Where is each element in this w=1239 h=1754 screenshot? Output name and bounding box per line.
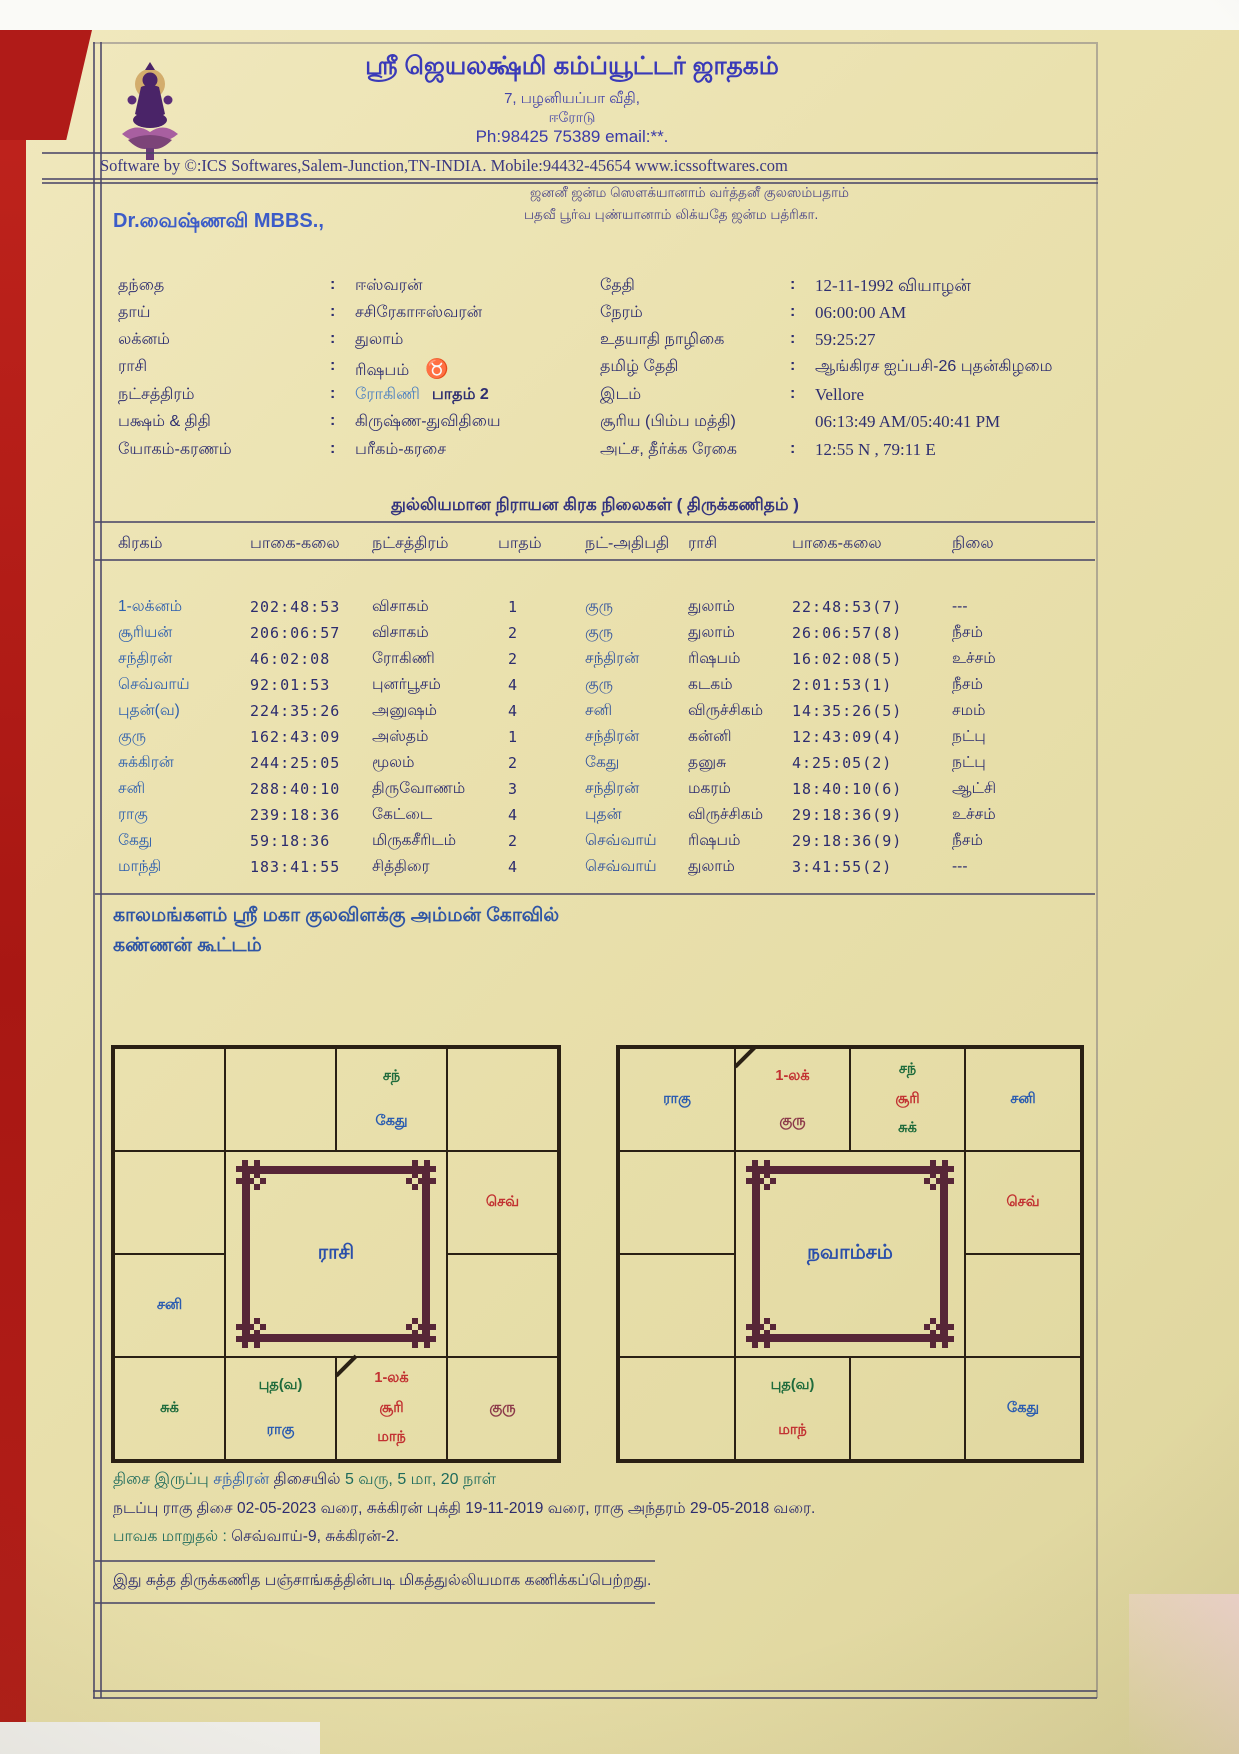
current-dasa-line: நடப்பு ராகு திசை 02-05-2023 வரை, சுக்கிர… xyxy=(113,1500,815,1519)
navamsa-cell-r4c4: கேது xyxy=(965,1357,1081,1460)
planet-saturn: சனி xyxy=(1010,1092,1035,1108)
detail-value: ஆங்கிரச ஐப்பசி-26 புதன்கிழமை xyxy=(815,357,1053,377)
col-padam: 4 xyxy=(508,858,518,876)
colon: : xyxy=(790,276,795,294)
col-padam: 1 xyxy=(508,728,518,746)
detail-value: பரீகம்-கரசை xyxy=(355,440,446,460)
planet-mars: செவ் xyxy=(1006,1195,1039,1211)
col-lord: புதன் xyxy=(585,806,622,825)
col-header-graham: கிரகம் xyxy=(118,534,162,554)
col-degree2: 29:18:36(9) xyxy=(792,806,902,824)
col-degree: 206:06:57 xyxy=(250,624,340,642)
bhava-change-values: செவ்வாய்-9, சுக்கிரன்-2. xyxy=(231,1528,399,1545)
table-row-jupiter: குரு 162:43:09 அஸ்தம் 1 சந்திரன் கன்னி 1… xyxy=(118,728,1098,750)
col-nilai: நட்பு xyxy=(952,728,986,747)
col-graham: ராகு xyxy=(118,806,148,825)
col-lord: கேது xyxy=(585,754,619,773)
table-row-rahu: ராகு 239:18:36 கேட்டை 4 புதன் விருச்சிகம… xyxy=(118,806,1098,828)
nakshatra-name: ரோகிணி xyxy=(355,386,420,403)
table-row-sun: சூரியன் 206:06:57 விசாகம் 2 குரு துலாம் … xyxy=(118,624,1098,646)
col-graham: செவ்வாய் xyxy=(118,676,190,695)
colon: : xyxy=(790,303,795,321)
colon: : xyxy=(790,330,795,348)
rasi-cell-r1c4 xyxy=(447,1048,558,1151)
detail-row-sunrise-sunset: சூரிய (பிம்ப மத்தி) 06:13:49 AM/05:40:41… xyxy=(600,412,1220,436)
rasi-cell-r3c4 xyxy=(447,1254,558,1357)
col-degree2: 2:01:53(1) xyxy=(792,676,892,694)
frame-bottom-outer xyxy=(93,1690,1097,1692)
kolam-ornament xyxy=(236,1318,266,1348)
lakshmi-logo xyxy=(112,60,188,162)
rasi-cell-r4c1: சுக் xyxy=(114,1357,225,1460)
kolam-ornament xyxy=(746,1160,776,1190)
navamsa-cell-r1c2-lagna: 1-லக் குரு xyxy=(735,1048,850,1151)
phone-line: Ph:98425 75389 email:**. xyxy=(292,127,852,147)
planet-jupiter: குரு xyxy=(489,1401,515,1417)
col-rasi: தனுசு xyxy=(688,754,726,773)
red-backdrop-left xyxy=(0,30,26,1754)
col-rasi: மகரம் xyxy=(688,780,731,799)
rule-under-table xyxy=(95,893,1095,895)
photo-top-margin xyxy=(0,0,1239,30)
col-degree2: 22:48:53(7) xyxy=(792,598,902,616)
planet-mars: செவ் xyxy=(486,1195,519,1211)
table-row-mercury: புதன்(வ) 224:35:26 அனுஷம் 4 சனி விருச்சி… xyxy=(118,702,1098,724)
navamsa-cell-r2c4: செவ் xyxy=(965,1151,1081,1254)
detail-label: ராசி xyxy=(118,357,147,377)
col-nilai: நீசம் xyxy=(952,624,983,643)
planet-table-title: துல்லியமான நிராயன கிரக நிலைகள் ( திருக்க… xyxy=(95,495,1095,517)
col-lord: செவ்வாய் xyxy=(585,858,657,877)
detail-row-father: தந்தை : ஈஸ்வரன் xyxy=(118,276,598,300)
col-nilai: உச்சம் xyxy=(952,650,996,669)
col-lord: குரு xyxy=(585,624,613,643)
planet-mercury: புத(வ) xyxy=(259,1378,303,1394)
col-nakshatra: விசாகம் xyxy=(372,624,429,643)
temple-note-line: காலமங்களம் ஸ்ரீ மகா குலவிளக்கு அம்மன் கோ… xyxy=(113,905,559,929)
col-graham: மாந்தி xyxy=(118,858,161,877)
detail-row-date: தேதி : 12-11-1992 வியாழன் xyxy=(600,276,1220,300)
business-title: ஸ்ரீ ஜெயலக்ஷ்மி கம்ப்யூட்டர் ஜாதகம் xyxy=(292,52,852,84)
col-nilai: நீசம் xyxy=(952,832,983,851)
dasa-balance-line: திசை இருப்பு சந்திரன் திசையில் 5 வரு, 5 … xyxy=(113,1470,496,1490)
accuracy-note-line: இது சுத்த திருக்கணித பஞ்சாங்கத்தின்படி ம… xyxy=(113,1572,651,1591)
col-degree: 46:02:08 xyxy=(250,650,330,668)
col-lord: சந்திரன் xyxy=(585,728,639,747)
table-row-maandhi: மாந்தி 183:41:55 சித்திரை 4 செவ்வாய் துல… xyxy=(118,858,1098,880)
detail-row-udhayathi-nazhigai: உதயாதி நாழிகை : 59:25:27 xyxy=(600,330,1220,354)
navamsa-cell-r2c1 xyxy=(619,1151,735,1254)
colon: : xyxy=(330,412,335,430)
navamsa-chart: ராகு 1-லக் குரு சந் சூரி சுக் சனி செவ் ப… xyxy=(616,1045,1084,1463)
photo-bottom-left-margin xyxy=(0,1722,320,1754)
rasi-cell-r1c1 xyxy=(114,1048,225,1151)
detail-label: தாய் xyxy=(118,303,151,323)
col-rasi: கன்னி xyxy=(688,728,732,747)
family-note-line: கண்ணன் கூட்டம் xyxy=(113,935,262,959)
col-rasi: ரிஷபம் xyxy=(688,650,741,669)
detail-row-tamil-date: தமிழ் தேதி : ஆங்கிரச ஐப்பசி-26 புதன்கிழம… xyxy=(600,357,1220,381)
col-graham: குரு xyxy=(118,728,146,747)
col-nakshatra: அனுஷம் xyxy=(372,702,437,721)
col-nakshatra: விசாகம் xyxy=(372,598,429,617)
dasa-balance-label: திசை இருப்பு xyxy=(113,1471,213,1488)
planet-ketu: கேது xyxy=(1007,1401,1039,1417)
rasi-cell-r4c4: குரு xyxy=(447,1357,558,1460)
rule-above-accuracy-note xyxy=(95,1560,655,1562)
detail-label: தேதி xyxy=(600,276,635,296)
col-nilai: உச்சம் xyxy=(952,806,996,825)
col-graham: சூரியன் xyxy=(118,624,172,643)
col-nakshatra: சித்திரை xyxy=(372,858,430,877)
table-row-saturn: சனி 288:40:10 திருவோணம் 3 சந்திரன் மகரம்… xyxy=(118,780,1098,802)
navamsa-cell-r1c1: ராகு xyxy=(619,1048,735,1151)
col-degree: 224:35:26 xyxy=(250,702,340,720)
col-padam: 4 xyxy=(508,702,518,720)
col-degree2: 14:35:26(5) xyxy=(792,702,902,720)
planet-venus: சுக் xyxy=(160,1401,179,1417)
rasi-chart-title: ராசி xyxy=(226,1242,446,1267)
colon: : xyxy=(790,357,795,375)
detail-label: பக்ஷம் & திதி xyxy=(118,412,211,432)
detail-value: துலாம் xyxy=(355,330,403,350)
planet-maandhi: மாந் xyxy=(377,1430,406,1446)
table-row-moon: சந்திரன் 46:02:08 ரோகிணி 2 சந்திரன் ரிஷப… xyxy=(118,650,1098,672)
planet-mercury: புத(வ) xyxy=(771,1378,815,1394)
navamsa-cell-r3c1 xyxy=(619,1254,735,1357)
col-nilai: --- xyxy=(952,598,968,616)
frame-bottom-inner xyxy=(93,1697,1097,1699)
detail-row-yogam-karanam: யோகம்-கரணம் : பரீகம்-கரசை xyxy=(118,440,598,464)
colon: : xyxy=(790,440,795,458)
photo-bottom-right-tint xyxy=(1129,1594,1239,1754)
detail-label: இடம் xyxy=(600,385,641,405)
detail-label: தமிழ் தேதி xyxy=(600,357,678,377)
rule-under-table-title xyxy=(95,521,1095,523)
col-nakshatra: அஸ்தம் xyxy=(372,728,428,747)
col-degree2: 3:41:55(2) xyxy=(792,858,892,876)
kolam-ornament xyxy=(236,1160,266,1190)
detail-label: யோகம்-கரணம் xyxy=(118,440,232,460)
colon: : xyxy=(330,276,335,294)
col-degree: 202:48:53 xyxy=(250,598,340,616)
col-header-degree2: பாகை-கலை xyxy=(792,534,882,554)
rasi-chart-center: ராசி xyxy=(225,1151,447,1357)
rule-below-accuracy-note xyxy=(95,1602,655,1604)
rasi-cell-r2c1 xyxy=(114,1151,225,1254)
detail-value: ரிஷபம்♉ xyxy=(355,357,449,381)
col-degree: 244:25:05 xyxy=(250,754,340,772)
col-degree2: 29:18:36(9) xyxy=(792,832,902,850)
col-lord: குரு xyxy=(585,598,613,617)
detail-label: நட்சத்திரம் xyxy=(118,385,195,405)
planet-jupiter: குரு xyxy=(779,1114,805,1130)
col-rasi: துலாம் xyxy=(688,624,735,643)
detail-row-lagnam: லக்னம் : துலாம் xyxy=(118,330,598,354)
lagna-mark xyxy=(335,1355,357,1377)
col-degree: 183:41:55 xyxy=(250,858,340,876)
detail-value: 59:25:27 xyxy=(815,330,875,350)
kolam-ornament xyxy=(924,1318,954,1348)
sloka-line-1: ஜனனீ ஜன்ம ஸௌக்யானாம் வர்த்தனீ குலஸம்பதாம… xyxy=(530,185,849,203)
table-row-mars: செவ்வாய் 92:01:53 புனர்பூசம் 4 குரு கடகம… xyxy=(118,676,1098,698)
detail-value: ரோகிணிபாதம் 2 xyxy=(355,385,489,405)
person-name: Dr.வைஷ்ணவி MBBS., xyxy=(113,210,324,235)
address-line-2: ஈரோடு xyxy=(292,109,852,128)
bhava-change-label: பாவக மாறுதல் : xyxy=(113,1528,231,1545)
detail-value: 12:55 N , 79:11 E xyxy=(815,440,936,460)
navamsa-cell-r4c3 xyxy=(850,1357,965,1460)
col-rasi: துலாம் xyxy=(688,598,735,617)
navamsa-cell-r4c1 xyxy=(619,1357,735,1460)
detail-label: லக்னம் xyxy=(118,330,170,350)
colon: : xyxy=(330,330,335,348)
kolam-ornament xyxy=(406,1318,436,1348)
kolam-ornament xyxy=(924,1160,954,1190)
rasi-cell-r1c3: சந் கேது xyxy=(336,1048,447,1151)
col-padam: 4 xyxy=(508,806,518,824)
col-nilai: சமம் xyxy=(952,702,986,721)
col-header-padam: பாதம் xyxy=(498,534,542,554)
address-line-1: 7, பழனியப்பா வீதி, xyxy=(292,90,852,109)
rasi-chart: சந் கேது செவ் சனி சுக் புத(வ) ராகு 1-லக்… xyxy=(111,1045,561,1463)
col-nakshatra: மூலம் xyxy=(372,754,415,773)
navamsa-chart-title: நவாம்சம் xyxy=(736,1242,964,1267)
lagna-mark xyxy=(734,1046,756,1068)
colon: : xyxy=(330,440,335,458)
col-padam: 1 xyxy=(508,598,518,616)
col-lord: சந்திரன் xyxy=(585,780,639,799)
colon: : xyxy=(330,357,335,375)
col-nilai: --- xyxy=(952,858,968,876)
navamsa-cell-r1c3: சந் சூரி சுக் xyxy=(850,1048,965,1151)
planet-moon: சந் xyxy=(899,1062,916,1078)
rasi-cell-r1c2 xyxy=(225,1048,336,1151)
detail-value: சசிரேகாஈஸ்வரன் xyxy=(355,303,482,323)
rasi-cell-r4c2: புத(வ) ராகு xyxy=(225,1357,336,1460)
col-padam: 2 xyxy=(508,650,518,668)
col-degree2: 26:06:57(8) xyxy=(792,624,902,642)
col-padam: 3 xyxy=(508,780,518,798)
col-padam: 4 xyxy=(508,676,518,694)
col-header-nakshatra: நட்சத்திரம் xyxy=(372,534,449,554)
rule-under-table-header xyxy=(95,559,1095,561)
col-degree2: 12:43:09(4) xyxy=(792,728,902,746)
frame-left-outer xyxy=(93,42,95,1698)
planet-saturn: சனி xyxy=(157,1298,182,1314)
sloka-line-2: பதவீ பூர்வ புண்யானாம் லிக்யதே ஜன்ம பத்ரி… xyxy=(524,207,818,225)
navamsa-cell-r4c2: புத(வ) மாந் xyxy=(735,1357,850,1460)
col-degree: 92:01:53 xyxy=(250,676,330,694)
detail-value: கிருஷ்ண-துவிதியை xyxy=(355,412,501,432)
planet-rahu: ராகு xyxy=(267,1423,295,1439)
col-header-rasi: ராசி xyxy=(688,534,717,554)
detail-label: உதயாதி நாழிகை xyxy=(600,330,724,350)
planet-sun: சூரி xyxy=(379,1401,403,1417)
planet-rahu: ராகு xyxy=(663,1092,691,1108)
bhava-change-line: பாவக மாறுதல் : செவ்வாய்-9, சுக்கிரன்-2. xyxy=(113,1528,399,1547)
detail-row-mother: தாய் : சசிரேகாஈஸ்வரன் xyxy=(118,303,598,327)
col-graham: சுக்கிரன் xyxy=(118,754,174,773)
col-nakshatra: புனர்பூசம் xyxy=(372,676,441,695)
padam-suffix: பாதம் 2 xyxy=(432,386,489,403)
col-degree: 288:40:10 xyxy=(250,780,340,798)
frame-left-inner xyxy=(100,42,102,1698)
detail-label: சூரிய (பிம்ப மத்தி) xyxy=(600,412,736,432)
software-credit-line: Software by ©:ICS Softwares,Salem-Juncti… xyxy=(100,156,788,176)
col-lord: செவ்வாய் xyxy=(585,832,657,851)
col-header-nilai: நிலை xyxy=(952,534,994,554)
planet-venus: சுக் xyxy=(898,1121,917,1137)
col-lord: குரு xyxy=(585,676,613,695)
col-graham: கேது xyxy=(118,832,152,851)
planet-ketu: கேது xyxy=(375,1114,407,1130)
detail-label: நேரம் xyxy=(600,303,643,323)
detail-value: Vellore xyxy=(815,385,864,405)
table-row-ketu: கேது 59:18:36 மிருகசீரிடம் 2 செவ்வாய் ரி… xyxy=(118,832,1098,854)
rasi-cell-r2c4: செவ் xyxy=(447,1151,558,1254)
table-header-row: கிரகம் பாகை-கலை நட்சத்திரம் பாதம் நட்-அத… xyxy=(118,534,1098,556)
planet-sun: சூரி xyxy=(895,1092,919,1108)
table-row-lagnam: 1-லக்னம் 202:48:53 விசாகம் 1 குரு துலாம்… xyxy=(118,598,1098,620)
col-degree: 59:18:36 xyxy=(250,832,330,850)
rasi-cell-r3c1: சனி xyxy=(114,1254,225,1357)
lagna-label: 1-லக் xyxy=(374,1371,408,1387)
lagna-label: 1-லக் xyxy=(775,1069,809,1085)
col-graham: 1-லக்னம் xyxy=(118,598,182,617)
col-lord: சந்திரன் xyxy=(585,650,639,669)
col-nilai: ஆட்சி xyxy=(952,780,996,799)
col-degree: 239:18:36 xyxy=(250,806,340,824)
dasa-balance-duration: 5 வரு, 5 மா, 20 நாள் xyxy=(345,1471,496,1488)
rule-under-header xyxy=(42,152,1098,154)
col-header-degree: பாகை-கலை xyxy=(250,534,340,554)
detail-value: ஈஸ்வரன் xyxy=(355,276,423,296)
detail-row-time: நேரம் : 06:00:00 AM xyxy=(600,303,1220,327)
col-lord: சனி xyxy=(585,702,612,721)
rasi-cell-r4c3-lagna: 1-லக் சூரி மாந் xyxy=(336,1357,447,1460)
detail-row-paksham-thithi: பக்ஷம் & திதி : கிருஷ்ண-துவிதியை xyxy=(118,412,598,436)
col-degree2: 4:25:05(2) xyxy=(792,754,892,772)
col-graham: சனி xyxy=(118,780,145,799)
col-nakshatra: ரோகிணி xyxy=(372,650,435,669)
colon: : xyxy=(330,303,335,321)
detail-row-nakshatra: நட்சத்திரம் : ரோகிணிபாதம் 2 xyxy=(118,385,598,409)
col-degree2: 16:02:08(5) xyxy=(792,650,902,668)
table-row-venus: சுக்கிரன் 244:25:05 மூலம் 2 கேது தனுசு 4… xyxy=(118,754,1098,776)
detail-value: 12-11-1992 வியாழன் xyxy=(815,276,971,298)
rasi-name: ரிஷபம் xyxy=(355,362,409,379)
planet-moon: சந் xyxy=(383,1069,400,1085)
frame-top xyxy=(93,42,1096,44)
col-nakshatra: கேட்டை xyxy=(372,806,432,825)
col-nilai: நீசம் xyxy=(952,676,983,695)
col-rasi: விருச்சிகம் xyxy=(688,702,763,721)
rule-under-software-1 xyxy=(42,178,1098,180)
photographed-horoscope-page: ஸ்ரீ ஜெயலக்ஷ்மி கம்ப்யூட்டர் ஜாதகம் 7, ப… xyxy=(0,0,1239,1754)
taurus-symbol-icon: ♉ xyxy=(425,359,449,380)
detail-value: 06:00:00 AM xyxy=(815,303,906,323)
navamsa-chart-center: நவாம்சம் xyxy=(735,1151,965,1357)
colon: : xyxy=(330,385,335,403)
detail-row-lat-long: அட்ச, தீர்க்க ரேகை : 12:55 N , 79:11 E xyxy=(600,440,1220,464)
navamsa-cell-r1c4: சனி xyxy=(965,1048,1081,1151)
col-rasi: ரிஷபம் xyxy=(688,832,741,851)
col-graham: புதன்(வ) xyxy=(118,702,180,721)
col-nakshatra: திருவோணம் xyxy=(372,780,465,799)
col-header-lord: நட்-அதிபதி xyxy=(585,534,669,554)
rule-under-software-2 xyxy=(42,182,1098,184)
col-degree2: 18:40:10(6) xyxy=(792,780,902,798)
navamsa-cell-r3c4 xyxy=(965,1254,1081,1357)
col-rasi: விருச்சிகம் xyxy=(688,806,763,825)
detail-label: தந்தை xyxy=(118,276,164,296)
col-nilai: நட்பு xyxy=(952,754,986,773)
detail-value: 06:13:49 AM/05:40:41 PM xyxy=(815,412,1000,432)
col-padam: 2 xyxy=(508,624,518,642)
kolam-ornament xyxy=(746,1318,776,1348)
detail-row-rasi: ராசி : ரிஷபம்♉ xyxy=(118,357,598,381)
col-nakshatra: மிருகசீரிடம் xyxy=(372,832,456,851)
dasa-lord: சந்திரன் xyxy=(213,1471,273,1488)
col-degree: 162:43:09 xyxy=(250,728,340,746)
detail-row-place: இடம் : Vellore xyxy=(600,385,1220,409)
dasa-balance-middle: திசையில் xyxy=(274,1471,345,1488)
col-rasi: துலாம் xyxy=(688,858,735,877)
col-graham: சந்திரன் xyxy=(118,650,172,669)
colon: : xyxy=(790,385,795,403)
detail-label: அட்ச, தீர்க்க ரேகை xyxy=(600,440,737,460)
kolam-ornament xyxy=(406,1160,436,1190)
col-rasi: கடகம் xyxy=(688,676,733,695)
col-padam: 2 xyxy=(508,754,518,772)
planet-maandhi: மாந் xyxy=(778,1423,807,1439)
col-padam: 2 xyxy=(508,832,518,850)
